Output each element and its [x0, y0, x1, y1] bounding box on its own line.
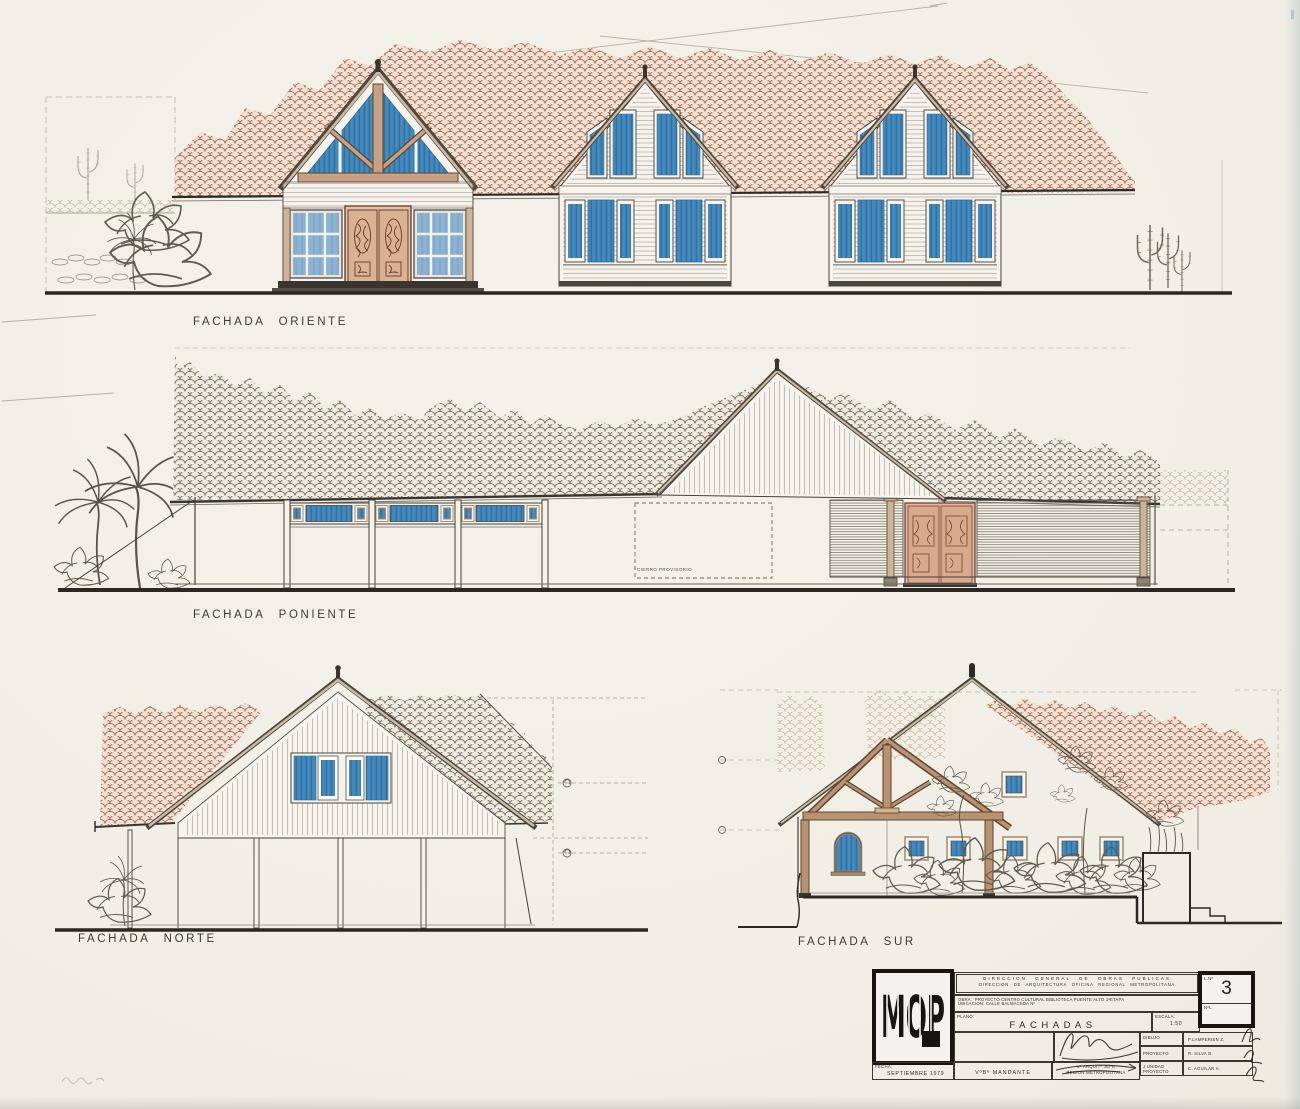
facade-poniente-drawing — [54, 348, 1235, 590]
label-fachada-poniente: FACHADA PONIENTE — [193, 609, 358, 621]
plano-cell: PLANO: FACHADAS — [954, 1012, 1152, 1032]
plano-label: PLANO: — [957, 1014, 975, 1019]
unidad-name-cell: C. AGUILAR A. — [1183, 1061, 1253, 1076]
obra-cell: OBRA: PROYECTO CENTRO CULTURAL BIBLIOTEC… — [954, 995, 1200, 1012]
dibujo-label-cell: DIBUJO — [1140, 1032, 1183, 1046]
mop-logo: MOP — [872, 969, 954, 1065]
header-line2: DIRECCION DE ARQUITECTURA OFICINA REGION… — [957, 982, 1197, 988]
proyecto-label: PROYECTO — [1141, 1047, 1182, 1056]
escala-value: 1:50 — [1153, 1021, 1199, 1027]
unidad-label-cell: J.UNIDAD PROYECTO — [1140, 1061, 1183, 1076]
title-block: MOP FECHA: SEPTIEMBRE 1979 VºBº MANDANTE… — [870, 966, 1268, 1096]
escala-label: ESCALA: — [1155, 1014, 1175, 1019]
facade-norte-drawing — [55, 665, 648, 930]
mandante-cell: VºBº MANDANTE — [954, 1062, 1052, 1080]
ubicacion-label: UBICACION: — [958, 1001, 984, 1006]
label-fachada-sur: FACHADA SUR — [798, 936, 916, 948]
label-fachada-norte: FACHADA NORTE — [78, 933, 217, 945]
mop-logo-glyph: MOP — [876, 973, 950, 1061]
mandante-value: VºBº MANDANTE — [955, 1070, 1051, 1076]
lamina-number: 3 — [1202, 978, 1251, 1000]
ubicacion-value: CALLE BALMACEDA Nº — [986, 1001, 1035, 1006]
visto-bueno-line2: REGION METROPOLITANA — [1053, 1070, 1139, 1076]
header-cell: DIRECCION GENERAL DE OBRAS PUBLICAS DIRE… — [954, 972, 1200, 995]
dibujo-name: P.LAMPERIEN Z. — [1184, 1033, 1252, 1042]
fecha-label: FECHA: — [875, 1064, 893, 1069]
facade-sur-drawing — [719, 663, 1283, 927]
unidad-name: C. AGUILAR A. — [1184, 1062, 1252, 1071]
visto-bueno-cell: Vº ARQUITº JEFE REGION METROPOLITANA — [1052, 1062, 1140, 1080]
scan-edge-right — [1284, 0, 1300, 1109]
lamina-sub-label: NºL — [1204, 1005, 1212, 1010]
scan-edge-bottom — [0, 1097, 1300, 1109]
sheet-number-box: L.Nº 3 NºL — [1198, 971, 1255, 1028]
drawing-sheet: FACHADA ORIENTE FACHADA PONIENTE FACHADA… — [0, 0, 1300, 1109]
escala-cell: ESCALA: 1:50 — [1152, 1012, 1200, 1032]
plano-value: FACHADAS — [955, 1020, 1151, 1031]
unidad-label: J.UNIDAD PROYECTO — [1141, 1062, 1177, 1075]
signature-cell-left — [954, 1032, 1054, 1062]
label-fachada-oriente: FACHADA ORIENTE — [193, 316, 348, 328]
signature-cell — [1054, 1032, 1140, 1062]
annotation-cierro-provisorio: CIERRO PROVISORIO — [637, 567, 692, 572]
fecha-cell: FECHA: SEPTIEMBRE 1979 — [872, 1062, 954, 1080]
proyecto-name: R. SILVA B. — [1184, 1047, 1252, 1056]
scan-speck — [1291, 10, 1294, 19]
dibujo-label: DIBUJO — [1141, 1033, 1182, 1040]
facade-oriente-drawing — [45, 40, 1232, 293]
dibujo-name-cell: P.LAMPERIEN Z. — [1183, 1032, 1253, 1046]
proyecto-name-cell: R. SILVA B. — [1183, 1046, 1253, 1061]
header-line1: DIRECCION GENERAL DE OBRAS PUBLICAS — [957, 975, 1197, 982]
proyecto-label-cell: PROYECTO — [1140, 1046, 1183, 1061]
fecha-value: SEPTIEMBRE 1979 — [887, 1071, 944, 1077]
